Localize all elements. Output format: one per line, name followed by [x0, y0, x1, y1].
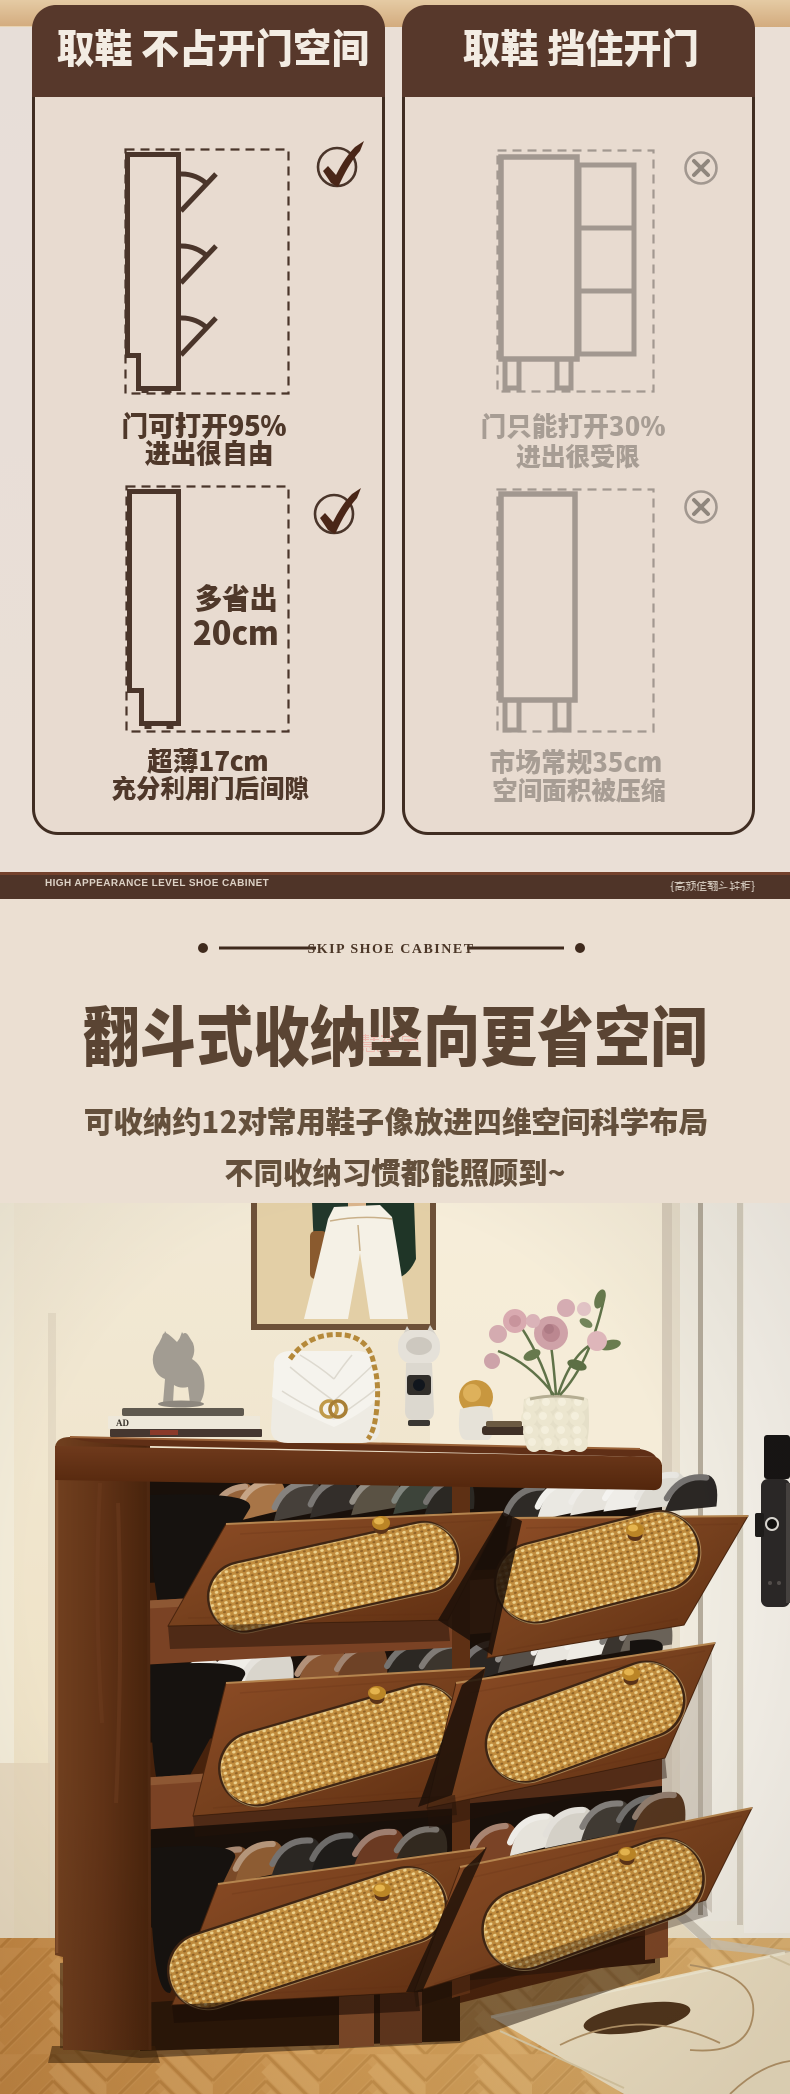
- svg-text:SKIP SHOE CABINET: SKIP SHOE CABINET: [307, 942, 474, 957]
